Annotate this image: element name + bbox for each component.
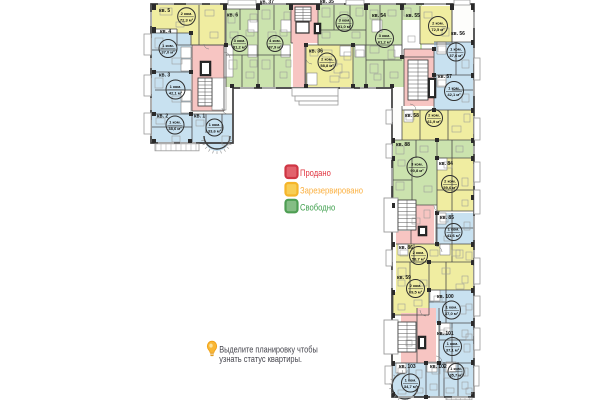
svg-text:кв. 57: кв. 57 bbox=[438, 74, 452, 80]
svg-text:кв. 4: кв. 4 bbox=[160, 29, 171, 35]
svg-text:91,0 м²: 91,0 м² bbox=[338, 24, 352, 29]
svg-text:кв. 85: кв. 85 bbox=[440, 215, 454, 221]
svg-text:37,1 м²: 37,1 м² bbox=[446, 348, 460, 353]
svg-text:кв. 3: кв. 3 bbox=[159, 73, 170, 79]
svg-text:кв. 2: кв. 2 bbox=[157, 114, 168, 120]
svg-text:1 ком.: 1 ком. bbox=[162, 43, 174, 48]
svg-text:2 ком.: 2 ком. bbox=[321, 57, 333, 62]
svg-text:87,9 м²: 87,9 м² bbox=[268, 45, 282, 50]
svg-text:кв. 35: кв. 35 bbox=[320, 0, 334, 5]
svg-text:34,7 м²: 34,7 м² bbox=[404, 384, 418, 389]
svg-text:3 ком.: 3 ком. bbox=[339, 18, 351, 23]
svg-text:кв. 103: кв. 103 bbox=[399, 364, 416, 370]
svg-text:1 ком.: 1 ком. bbox=[450, 366, 462, 371]
svg-text:кв. 100: кв. 100 bbox=[437, 294, 454, 300]
svg-text:1 ком.: 1 ком. bbox=[448, 227, 460, 232]
svg-text:41,6 м²: 41,6 м² bbox=[447, 233, 461, 238]
svg-text:кв. 6: кв. 6 bbox=[227, 13, 238, 19]
svg-text:37,6 м²: 37,6 м² bbox=[449, 53, 463, 58]
svg-text:42,1 м²: 42,1 м² bbox=[447, 92, 461, 97]
svg-text:2 ком.: 2 ком. bbox=[444, 179, 456, 184]
svg-text:38,6 м²: 38,6 м² bbox=[168, 126, 182, 131]
svg-text:Зарезервировано: Зарезервировано bbox=[300, 186, 363, 196]
svg-text:1 ком.: 1 ком. bbox=[405, 378, 417, 383]
svg-text:кв. 101: кв. 101 bbox=[437, 331, 454, 337]
svg-text:58,8 м²: 58,8 м² bbox=[320, 63, 334, 68]
svg-text:1 ком.: 1 ком. bbox=[446, 305, 458, 310]
svg-text:кв. 1: кв. 1 bbox=[194, 114, 205, 120]
svg-text:72,5 м²: 72,5 м² bbox=[431, 27, 445, 32]
svg-text:61,2 м²: 61,2 м² bbox=[378, 40, 392, 45]
svg-text:3 ком.: 3 ком. bbox=[411, 162, 423, 167]
svg-text:72,3 м²: 72,3 м² bbox=[180, 18, 194, 23]
svg-text:Свободно: Свободно bbox=[300, 203, 335, 213]
svg-text:35,7 м²: 35,7 м² bbox=[449, 373, 463, 378]
svg-text:37,0 м²: 37,0 м² bbox=[161, 50, 175, 55]
svg-text:кв. 5: кв. 5 bbox=[159, 8, 170, 14]
svg-text:4 ком.: 4 ком. bbox=[269, 38, 281, 43]
svg-text:кв. 36: кв. 36 bbox=[309, 48, 323, 54]
svg-text:кв. 102: кв. 102 bbox=[430, 364, 447, 370]
svg-text:1 ком.: 1 ком. bbox=[209, 122, 221, 127]
svg-text:кв. 58: кв. 58 bbox=[405, 113, 419, 119]
svg-text:узнать статус квартиры.: узнать статус квартиры. bbox=[219, 354, 302, 364]
svg-text:58,7 м²: 58,7 м² bbox=[412, 257, 426, 262]
svg-text:кв. 37: кв. 37 bbox=[260, 0, 274, 6]
svg-text:2 ком.: 2 ком. bbox=[432, 21, 444, 26]
svg-text:3 ком.: 3 ком. bbox=[234, 38, 246, 43]
svg-text:2 ком.: 2 ком. bbox=[428, 113, 440, 118]
svg-text:Выделите планировку чтобы: Выделите планировку чтобы bbox=[219, 344, 318, 354]
svg-text:1 ком.: 1 ком. bbox=[169, 120, 181, 125]
svg-text:90,8 м²: 90,8 м² bbox=[410, 168, 424, 173]
svg-text:Продано: Продано bbox=[300, 168, 331, 178]
svg-text:2 ком.: 2 ком. bbox=[410, 283, 422, 288]
svg-text:1 ком.: 1 ком. bbox=[450, 47, 462, 52]
svg-text:61,9 м²: 61,9 м² bbox=[427, 119, 441, 124]
svg-text:кв. 59: кв. 59 bbox=[397, 275, 411, 281]
svg-text:3 ком.: 3 ком. bbox=[379, 33, 391, 38]
svg-text:кв. 54: кв. 54 bbox=[372, 13, 386, 19]
svg-text:69,5 м²: 69,5 м² bbox=[409, 290, 423, 295]
svg-text:кв. 88: кв. 88 bbox=[396, 142, 410, 148]
svg-text:кв. 84: кв. 84 bbox=[439, 161, 453, 167]
svg-text:37,0 м²: 37,0 м² bbox=[445, 311, 459, 316]
svg-text:кв. 56: кв. 56 bbox=[451, 31, 465, 37]
svg-text:33,6 м²: 33,6 м² bbox=[208, 129, 222, 134]
svg-text:1 ком.: 1 ком. bbox=[448, 86, 460, 91]
svg-text:1 ком.: 1 ком. bbox=[170, 84, 182, 89]
svg-text:42,1 м²: 42,1 м² bbox=[169, 91, 183, 96]
svg-text:2 ком.: 2 ком. bbox=[413, 250, 425, 255]
svg-text:59,6 м²: 59,6 м² bbox=[443, 185, 457, 190]
svg-text:81,2 м²: 81,2 м² bbox=[233, 45, 247, 50]
svg-text:1 ком.: 1 ком. bbox=[447, 341, 459, 346]
svg-text:кв. 55: кв. 55 bbox=[406, 13, 420, 19]
svg-text:2 ком.: 2 ком. bbox=[181, 11, 193, 16]
